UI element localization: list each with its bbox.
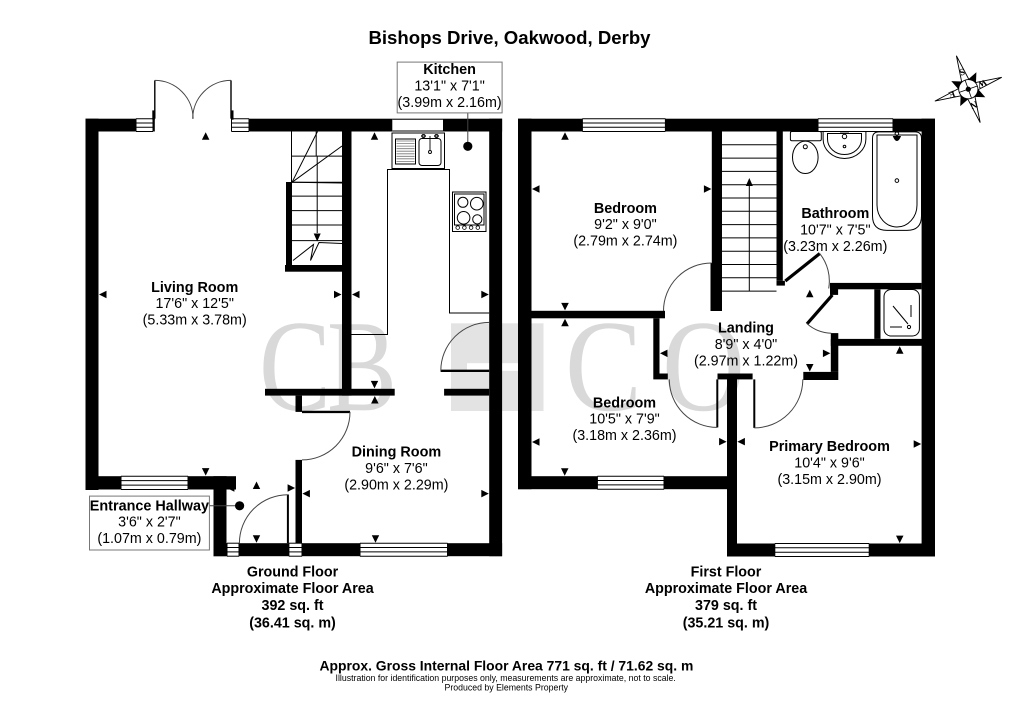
svg-text:Ground Floor: Ground Floor (247, 565, 339, 581)
svg-text:Bishops Drive, Oakwood, Derby: Bishops Drive, Oakwood, Derby (368, 27, 651, 48)
svg-text:10'7" x 7'5": 10'7" x 7'5" (800, 223, 870, 239)
svg-text:Dining Room: Dining Room (352, 445, 442, 461)
svg-text:Landing: Landing (718, 321, 774, 337)
svg-text:379 sq. ft: 379 sq. ft (695, 598, 757, 614)
svg-text:(3.99m x 2.16m): (3.99m x 2.16m) (398, 95, 502, 111)
svg-text:13'1" x 7'1": 13'1" x 7'1" (414, 78, 484, 94)
svg-text:(35.21 sq. m): (35.21 sq. m) (683, 616, 770, 632)
svg-text:(2.79m x 2.74m): (2.79m x 2.74m) (573, 234, 677, 250)
svg-text:Kitchen: Kitchen (423, 62, 476, 78)
svg-text:9'2" x 9'0": 9'2" x 9'0" (594, 217, 657, 233)
svg-text:(1.07m x 0.79m): (1.07m x 0.79m) (97, 531, 201, 547)
svg-text:10'4" x 9'6": 10'4" x 9'6" (794, 456, 864, 472)
svg-text:9'6" x 7'6": 9'6" x 7'6" (365, 461, 428, 477)
svg-text:(3.15m x 2.90m): (3.15m x 2.90m) (777, 472, 881, 488)
svg-text:3'6" x 2'7": 3'6" x 2'7" (118, 515, 181, 531)
svg-text:Approximate Floor Area: Approximate Floor Area (645, 581, 808, 597)
svg-text:(3.18m x 2.36m): (3.18m x 2.36m) (572, 428, 676, 444)
svg-text:10'5" x 7'9": 10'5" x 7'9" (589, 412, 659, 428)
svg-text:(3.23m x 2.26m): (3.23m x 2.26m) (783, 239, 887, 255)
svg-text:Living Room: Living Room (151, 280, 238, 296)
svg-text:(5.33m x 3.78m): (5.33m x 3.78m) (143, 313, 247, 329)
svg-text:(36.41 sq. m): (36.41 sq. m) (249, 616, 336, 632)
svg-text:(2.90m x 2.29m): (2.90m x 2.29m) (344, 477, 448, 493)
svg-text:392 sq. ft: 392 sq. ft (262, 598, 324, 614)
svg-text:Primary Bedroom: Primary Bedroom (769, 439, 890, 455)
svg-text:B: B (327, 294, 397, 439)
svg-text:Approximate Floor Area: Approximate Floor Area (211, 581, 374, 597)
svg-text:Bedroom: Bedroom (594, 201, 657, 217)
svg-text:First Floor: First Floor (691, 565, 762, 581)
svg-text:C: C (259, 294, 331, 439)
svg-text:Illustration for identificatio: Illustration for identification purposes… (336, 673, 676, 683)
svg-text:Bedroom: Bedroom (593, 395, 656, 411)
svg-text:Approx. Gross Internal Floor A: Approx. Gross Internal Floor Area 771 sq… (319, 658, 693, 674)
svg-text:17'6" x 12'5": 17'6" x 12'5" (155, 296, 233, 312)
svg-text:(2.97m x 1.22m): (2.97m x 1.22m) (694, 354, 798, 370)
svg-text:Bathroom: Bathroom (801, 206, 869, 222)
svg-text:8'9" x 4'0": 8'9" x 4'0" (715, 337, 778, 353)
svg-text:Entrance Hallway: Entrance Hallway (90, 498, 209, 514)
svg-text:Produced by Elements Property: Produced by Elements Property (445, 683, 569, 693)
